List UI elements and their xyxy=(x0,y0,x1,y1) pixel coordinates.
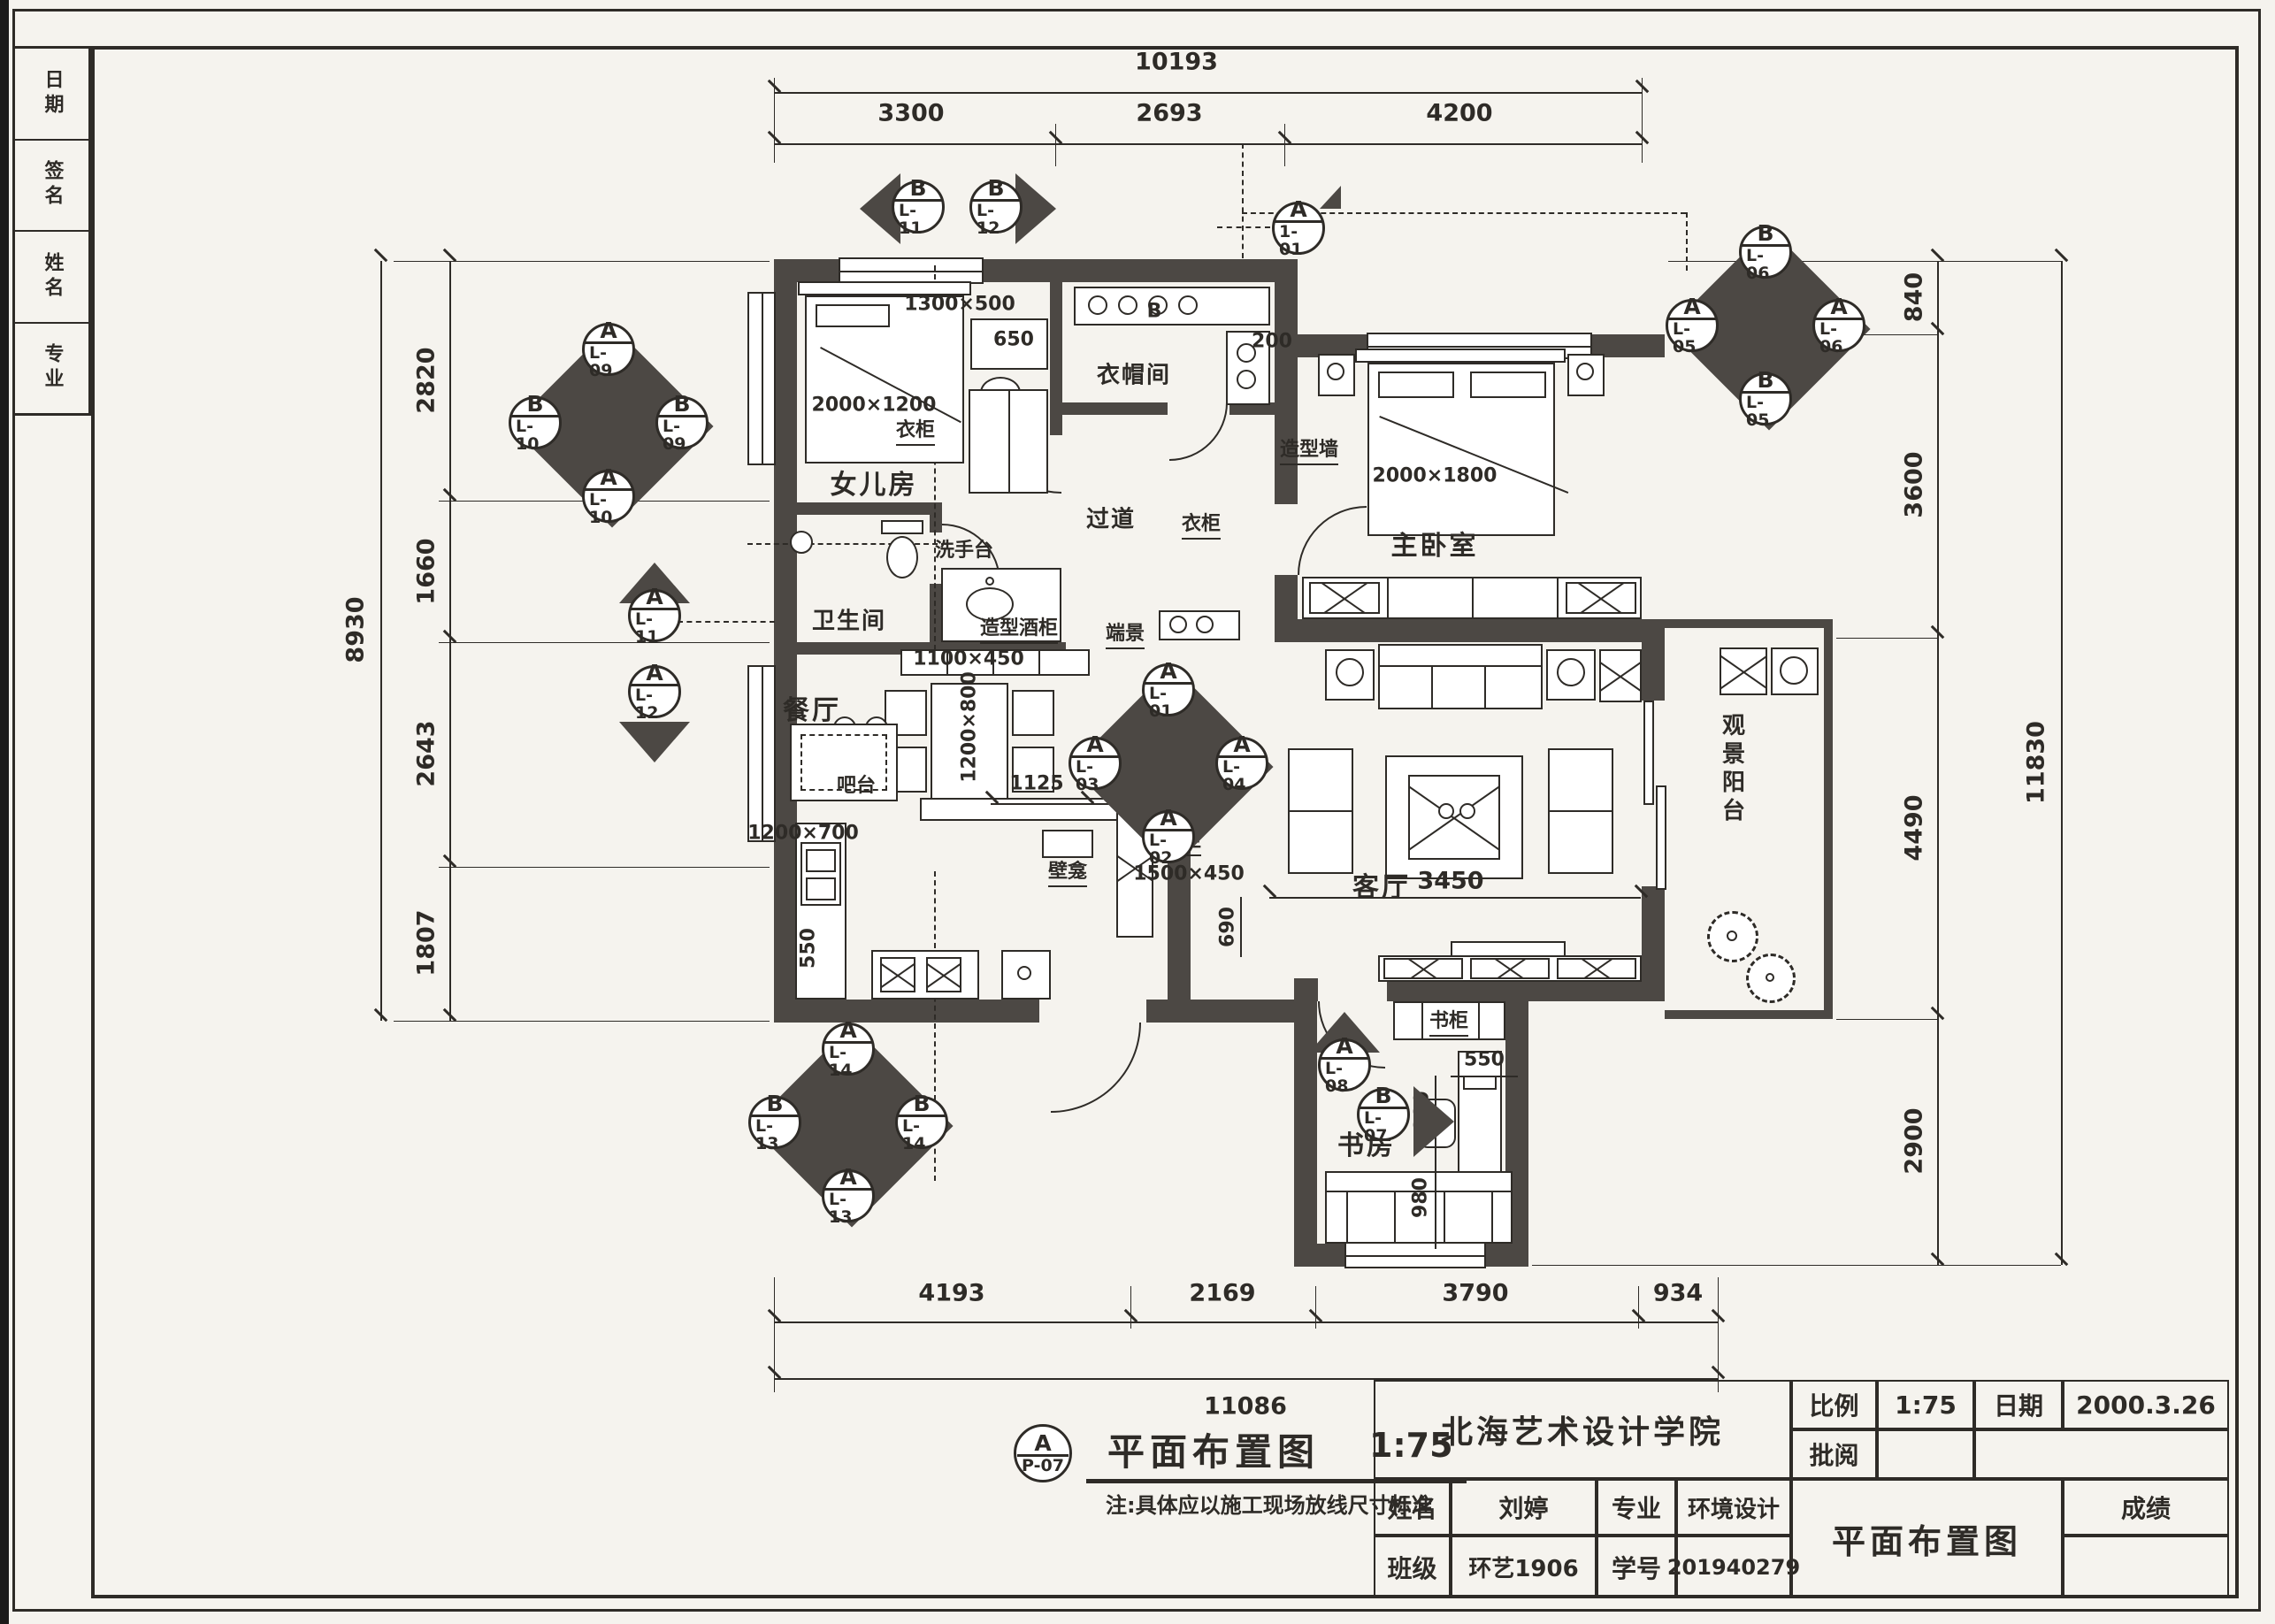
wardrobe-label: 衣柜 xyxy=(1182,508,1221,540)
dim-line xyxy=(1240,897,1242,957)
window xyxy=(747,665,776,842)
floor-plan-sheet: 日期 签名 姓名 专业 xyxy=(0,0,2275,1624)
wall xyxy=(774,502,942,515)
dim-left-seg: 2820 xyxy=(413,347,440,413)
elevation-marker: AL-03 xyxy=(1069,737,1122,790)
window xyxy=(1344,1242,1486,1268)
cabinet-divider xyxy=(1472,577,1474,619)
washer-drum xyxy=(1780,656,1808,685)
drawing-title: 平面布置图 xyxy=(1832,1514,2022,1563)
room-label-corridor: 过道 xyxy=(1086,502,1136,534)
title-block: 北海艺术设计学院 比例 1:75 日期 2000.3.26 批阅 姓名 刘婷 专… xyxy=(1374,1380,2229,1598)
lamp xyxy=(1327,363,1344,380)
legend-title: 平面布置图 xyxy=(1107,1422,1320,1476)
dim-line-left xyxy=(449,261,451,1021)
elevation-marker: AL-12 xyxy=(628,665,681,718)
feature-wall-label: 造型墙 xyxy=(1280,433,1338,465)
grade-label-cell: 成绩 xyxy=(2063,1479,2229,1536)
dim-690: 690 xyxy=(1217,907,1239,947)
room-label-girl: 女儿房 xyxy=(831,463,918,502)
cabinet-divider xyxy=(1038,649,1040,676)
class-label: 班级 xyxy=(1387,1550,1436,1585)
dim-left-total: 8930 xyxy=(342,596,370,663)
lamp xyxy=(1576,363,1594,380)
wall xyxy=(1642,886,1665,978)
dim-line-total-top xyxy=(774,92,1642,94)
elevation-marker: BL-06 xyxy=(1739,226,1792,279)
sofa-back-line xyxy=(1380,665,1541,667)
id-value-cell: 201940279 xyxy=(1676,1536,1791,1598)
cabinet-divider xyxy=(1557,577,1559,619)
plant-center xyxy=(1766,973,1774,982)
balcony-unit xyxy=(1720,647,1767,695)
date-label-cell: 日期 xyxy=(1974,1380,2063,1429)
ext-line xyxy=(1642,78,1643,163)
dim-bottom-seg: 3790 xyxy=(1442,1280,1508,1307)
id-value: 201940279 xyxy=(1667,1555,1800,1580)
dim-bottom-seg: 4193 xyxy=(918,1280,984,1307)
ext-line xyxy=(1055,124,1056,166)
dim-200: 200 xyxy=(1252,331,1292,353)
hanger xyxy=(1178,295,1198,315)
sofa-arm xyxy=(1491,1191,1493,1242)
major-value: 环境设计 xyxy=(1688,1491,1780,1524)
tv-cabinet-x xyxy=(1383,958,1463,979)
balcony-wall xyxy=(1824,619,1833,1019)
dim-left-seg: 1807 xyxy=(413,909,440,976)
dim-980: 980 xyxy=(1410,1177,1432,1218)
ext-line xyxy=(1836,1019,1937,1020)
dim-top-seg: 2693 xyxy=(1136,100,1202,127)
elevation-marker: BL-11 xyxy=(892,180,945,234)
axis-dash xyxy=(747,543,946,545)
room-label-master: 主卧室 xyxy=(1391,524,1479,563)
balcony-wall xyxy=(1665,1010,1833,1019)
hanger xyxy=(1237,370,1256,389)
elevation-marker-cluster: AL-14 BL-13 BL-14 AL-13 xyxy=(750,1024,954,1228)
name-value-cell: 刘婷 xyxy=(1451,1479,1597,1536)
sofa-cushion-divider xyxy=(1444,1191,1445,1242)
wall xyxy=(1642,642,1665,701)
room-label-balcony: 观景阳台 xyxy=(1716,713,1749,826)
ext-line xyxy=(439,867,770,868)
id-label: 学号 xyxy=(1612,1550,1661,1585)
ext-line xyxy=(1284,124,1285,166)
strip-label: 日期 xyxy=(38,69,66,119)
toilet-tank xyxy=(881,520,923,534)
dim-top-total: 10193 xyxy=(1135,49,1218,76)
scale-label-cell: 比例 xyxy=(1791,1380,1877,1429)
elevation-marker: AL-08 xyxy=(1318,1038,1371,1092)
tv-cabinet-x xyxy=(1557,958,1636,979)
bed-headboard xyxy=(1355,349,1566,363)
elevation-marker: AL-10 xyxy=(582,470,635,523)
margin-strip: 日期 签名 姓名 专业 xyxy=(12,46,91,416)
dim-bottom-seg: 934 xyxy=(1653,1280,1703,1307)
hanger xyxy=(1118,295,1137,315)
dim-line xyxy=(1269,897,1641,899)
date-label: 日期 xyxy=(1994,1387,2043,1422)
burner xyxy=(926,957,961,992)
size-label: 1200×700 xyxy=(747,823,859,845)
corner-decor xyxy=(1599,649,1642,702)
lamp xyxy=(1336,658,1364,686)
elevation-marker: AL-09 xyxy=(582,323,635,376)
pillow xyxy=(1470,372,1546,398)
strip-label: 签名 xyxy=(38,160,66,210)
cup xyxy=(1438,803,1454,819)
balcony-wall xyxy=(1665,619,1833,628)
elevation-marker: BL-09 xyxy=(655,396,709,449)
washstand-label: 洗手台 xyxy=(935,534,993,563)
dim-top-seg: 3300 xyxy=(877,100,944,127)
burner xyxy=(880,957,915,992)
section-flag xyxy=(1320,186,1341,209)
date-value: 2000.3.26 xyxy=(2076,1390,2216,1420)
hanger xyxy=(1088,295,1107,315)
date-value-cell: 2000.3.26 xyxy=(2063,1380,2229,1429)
class-value: 环艺1906 xyxy=(1468,1551,1578,1583)
sofa-cushion-divider xyxy=(1290,810,1352,812)
scale-value-cell: 1:75 xyxy=(1877,1380,1974,1429)
elevation-marker-cluster: AL-01 AL-03 AL-04 AL-02 xyxy=(1070,665,1274,869)
sink-bowl xyxy=(806,849,836,872)
marker-triangle xyxy=(619,722,690,762)
dim-line-total-left xyxy=(380,261,382,1021)
dim-right-total: 11830 xyxy=(2023,721,2050,804)
sofa-cushion-divider xyxy=(1431,665,1433,708)
dim-line-total-right xyxy=(2061,261,2063,1265)
dim-line xyxy=(1451,1076,1518,1077)
elevation-marker: BL-10 xyxy=(509,396,562,449)
scan-edge xyxy=(0,0,9,1624)
school-name: 北海艺术设计学院 xyxy=(1441,1406,1724,1452)
elevation-marker: AL-14 xyxy=(822,1023,875,1076)
size-label: 2000×1200 xyxy=(812,395,937,417)
dim-650: 650 xyxy=(993,329,1034,351)
strip-cell: 姓名 xyxy=(15,232,88,324)
marker-triangle xyxy=(1413,1086,1454,1157)
elevation-marker: AL-01 xyxy=(1142,663,1195,716)
elevation-marker: AL-04 xyxy=(1215,737,1268,790)
wall xyxy=(1294,1244,1344,1267)
dim-line-bottom xyxy=(774,1321,1718,1323)
room-label-dining: 餐厅 xyxy=(783,688,841,727)
axis-dash xyxy=(678,621,775,623)
name-label-cell: 姓名 xyxy=(1374,1479,1451,1536)
shower-head xyxy=(790,531,813,554)
size-label: 1200×800 xyxy=(959,671,981,783)
decor xyxy=(1169,616,1187,633)
sofa-long xyxy=(1378,644,1543,709)
dim-right-seg: 3600 xyxy=(1901,451,1928,517)
elevation-marker: AL-11 xyxy=(628,589,681,642)
elevation-marker: AL-02 xyxy=(1142,810,1195,863)
elevation-marker: BL-12 xyxy=(969,180,1023,234)
ext-line xyxy=(394,1021,770,1022)
coffee-table-top xyxy=(1408,775,1500,860)
decor xyxy=(1196,616,1214,633)
wall xyxy=(1294,978,1318,1001)
elevation-marker: BL-05 xyxy=(1739,372,1792,425)
id-label-cell: 学号 xyxy=(1597,1536,1676,1598)
strip-cell: 签名 xyxy=(15,141,88,233)
cabinet-x xyxy=(1566,582,1636,614)
review-label: 批阅 xyxy=(1809,1436,1858,1472)
dim-left-seg: 1660 xyxy=(413,538,440,604)
elevation-marker: AL-05 xyxy=(1666,299,1719,352)
wine-cabinet-label: 造型酒柜 xyxy=(980,612,1058,644)
grade-label: 成绩 xyxy=(2121,1490,2171,1525)
dim-bottom-seg: 2169 xyxy=(1189,1280,1255,1307)
sofa-cushion-divider xyxy=(1394,1191,1396,1242)
dim-right-seg: 4490 xyxy=(1901,794,1928,861)
elevation-marker-cluster: AL-09 BL-10 BL-09 AL-10 xyxy=(510,325,714,528)
wardrobe-divider xyxy=(1008,389,1010,494)
cabinet-divider xyxy=(1387,577,1389,619)
strip-cell: 专业 xyxy=(15,324,88,414)
cup xyxy=(1459,803,1475,819)
ext-line xyxy=(1836,638,1937,639)
review-value-cell xyxy=(1877,1429,1974,1479)
toilet xyxy=(886,536,918,578)
sink-bowl xyxy=(806,877,836,900)
elevation-marker: BL-14 xyxy=(895,1096,948,1149)
room-label-cloak: 衣帽间 xyxy=(1097,357,1171,390)
faucet xyxy=(985,577,994,586)
dim-550-study: 550 xyxy=(1464,1049,1505,1071)
major-value-cell: 环境设计 xyxy=(1676,1479,1791,1536)
dim-right-seg: 2900 xyxy=(1901,1107,1928,1174)
bookcase-divider xyxy=(1478,1001,1480,1040)
dim-right-seg: 840 xyxy=(1901,272,1928,322)
major-label: 专业 xyxy=(1612,1490,1661,1525)
legend-marker: AP-07 xyxy=(1014,1424,1072,1482)
strip-label: 姓名 xyxy=(38,252,66,302)
section-marker: A1-01 xyxy=(1272,202,1325,255)
sliding-door-panel xyxy=(1643,701,1654,805)
sofa-cushion-divider xyxy=(1484,665,1486,708)
size-label: 1300×500 xyxy=(904,294,1015,316)
dim-line-top xyxy=(774,143,1642,145)
class-value-cell: 环艺1906 xyxy=(1451,1536,1597,1598)
wall xyxy=(1146,1000,1294,1023)
grade-value-cell xyxy=(2063,1536,2229,1598)
scale-value: 1:75 xyxy=(1895,1390,1957,1420)
letter-b: B xyxy=(1147,301,1162,323)
review-extra-cell xyxy=(1974,1429,2229,1479)
school-cell: 北海艺术设计学院 xyxy=(1374,1380,1791,1479)
pillow xyxy=(816,304,890,327)
wall xyxy=(1275,619,1665,642)
axis-dash xyxy=(1217,226,1270,228)
elevation-marker: AL-13 xyxy=(822,1169,875,1222)
dim-1125: 1125 xyxy=(1009,773,1063,795)
class-label-cell: 班级 xyxy=(1374,1536,1451,1598)
plant-center xyxy=(1727,931,1737,941)
window xyxy=(839,257,984,284)
sofa-arm xyxy=(1346,1191,1348,1242)
monitor xyxy=(1463,1076,1497,1090)
wall xyxy=(1050,402,1168,415)
tv-cabinet-x xyxy=(1470,958,1550,979)
axis-dash xyxy=(1242,143,1244,258)
dim-550-kitchen: 550 xyxy=(798,928,820,969)
elevation-marker-cluster: BL-06 AL-05 AL-06 BL-05 xyxy=(1667,227,1871,431)
bookcase-label: 书柜 xyxy=(1429,1005,1468,1037)
tv xyxy=(1451,941,1566,957)
end-view-label: 端景 xyxy=(1106,617,1145,649)
elevation-marker: BL-07 xyxy=(1357,1088,1410,1141)
sliding-door-panel xyxy=(1656,785,1666,890)
major-label-cell: 专业 xyxy=(1597,1479,1676,1536)
bookcase-divider xyxy=(1421,1001,1423,1040)
lamp xyxy=(1557,658,1585,686)
wall xyxy=(930,502,942,532)
dim-left-seg: 2643 xyxy=(413,720,440,786)
cabinet-x xyxy=(1309,582,1380,614)
size-label: 1100×450 xyxy=(913,648,1024,670)
bay-window xyxy=(747,292,776,465)
dim-3450: 3450 xyxy=(1417,868,1483,895)
dining-chair xyxy=(1012,690,1054,736)
elevation-marker: AL-06 xyxy=(1812,299,1865,352)
review-label-cell: 批阅 xyxy=(1791,1429,1877,1479)
wardrobe-label: 衣柜 xyxy=(896,414,935,446)
fridge-knob xyxy=(1017,966,1031,980)
pillow xyxy=(1378,372,1454,398)
name-label: 姓名 xyxy=(1387,1490,1436,1525)
wall xyxy=(774,259,797,1023)
dim-line-right xyxy=(1937,261,1939,1265)
elevation-marker: BL-13 xyxy=(748,1096,801,1149)
drawing-title-cell: 平面布置图 xyxy=(1791,1479,2063,1598)
name-value: 刘婷 xyxy=(1498,1490,1548,1525)
bar-label: 吧台 xyxy=(837,770,876,801)
wall xyxy=(774,1000,1039,1023)
ext-line xyxy=(774,78,775,163)
scale-label: 比例 xyxy=(1809,1387,1858,1422)
room-label-bath: 卫生间 xyxy=(812,603,886,636)
strip-label: 专业 xyxy=(38,343,66,393)
ext-line xyxy=(1532,1265,2061,1266)
size-label: 2000×1800 xyxy=(1373,465,1498,487)
ext-line xyxy=(439,642,770,643)
sofa-cushion-divider xyxy=(1550,810,1612,812)
wall xyxy=(1275,356,1298,504)
strip-cell: 日期 xyxy=(15,49,88,141)
dim-bottom-total: 11086 xyxy=(1204,1393,1287,1421)
dim-top-seg: 4200 xyxy=(1426,100,1492,127)
